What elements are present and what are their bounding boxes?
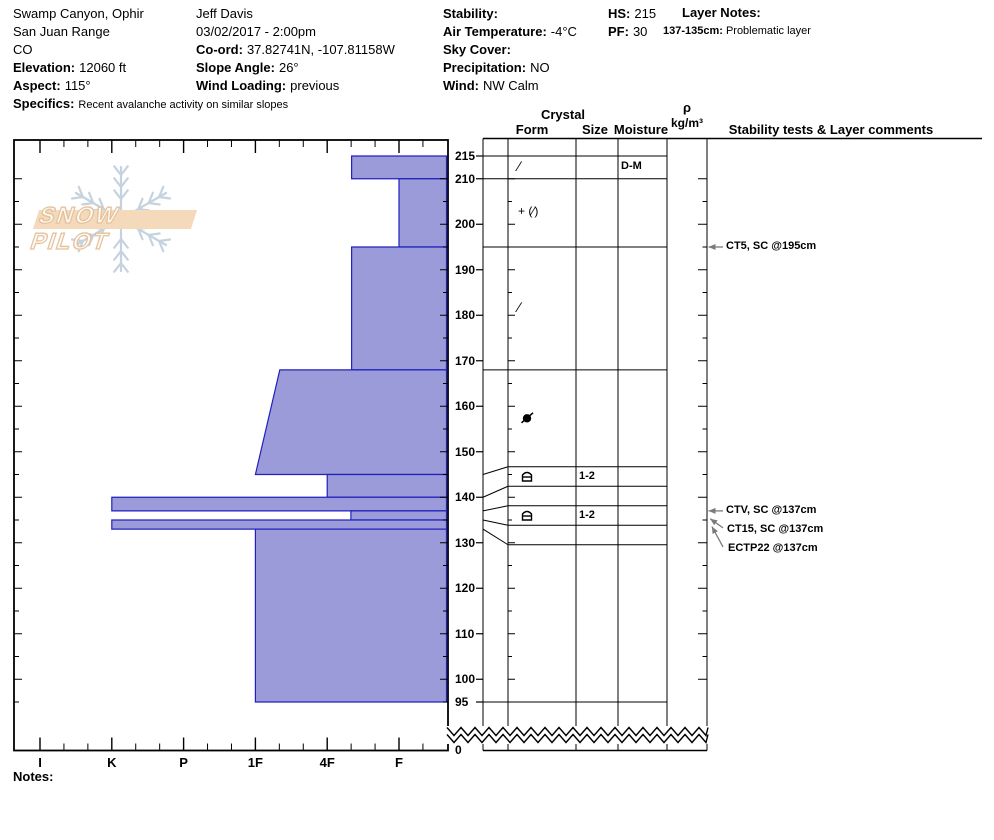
- hardness-bar: [351, 511, 447, 520]
- stability-comments-header: Stability tests & Layer comments: [700, 122, 962, 137]
- row-connector-line: [483, 486, 508, 497]
- hardness-bar: [352, 247, 447, 370]
- density-header: ρ: [667, 100, 707, 115]
- row-connector-line: [483, 467, 508, 475]
- row-connector-line: [483, 529, 508, 545]
- hardness-bar: [399, 179, 447, 247]
- hardness-bar: [327, 475, 446, 498]
- form-header: Form: [507, 122, 557, 137]
- hardness-bar: [255, 529, 446, 702]
- row-connector-line: [483, 506, 508, 511]
- crystal-header: Crystal: [523, 107, 603, 122]
- hardness-bar: [112, 520, 447, 529]
- ground-depth-label: 0: [455, 743, 462, 757]
- snowpilot-profile-report: Swamp Canyon, OphirSan Juan RangeCOEleva…: [0, 0, 994, 840]
- row-connector-line: [483, 520, 508, 525]
- hardness-bar: [255, 370, 446, 475]
- notes-label: Notes:: [13, 769, 53, 784]
- annotation-arrow-icon: [712, 527, 723, 547]
- hardness-bar: [112, 497, 447, 511]
- hardness-bar: [352, 156, 447, 179]
